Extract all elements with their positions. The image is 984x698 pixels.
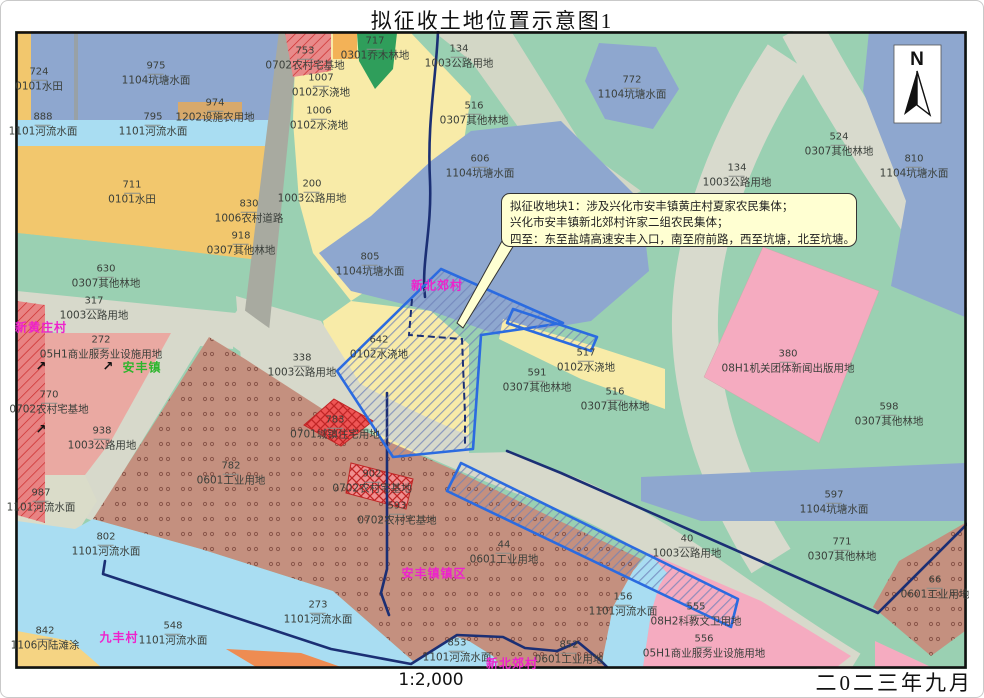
page: 拟征收土地位置示意图1 <box>0 0 984 698</box>
north-letter: N <box>910 49 924 70</box>
callout-box: 拟征收地块1：涉及兴化市安丰镇黄庄村夏家农民集体； 兴化市安丰镇新北郊村许家二组… <box>501 193 857 247</box>
left-red-strip <box>17 301 45 523</box>
paddy-strip-left <box>17 31 31 123</box>
map-date: 二0二三年九月 <box>816 667 974 697</box>
callout-line-1: 拟征收地块1：涉及兴化市安丰镇黄庄村夏家农民集体； <box>510 198 848 214</box>
map-area[interactable]: N <box>15 31 967 669</box>
callout-line-2: 兴化市安丰镇新北郊村许家二组农民集体； <box>510 214 848 230</box>
river-top <box>17 120 279 147</box>
map-scale: 1:2,000 <box>351 670 511 690</box>
orange-parcel-top <box>333 33 357 59</box>
farm-facility-974 <box>178 102 242 119</box>
map-canvas: N <box>15 31 967 669</box>
callout-line-3: 四至：东至盐靖高速安丰入口，南至府前路，西至坑塘，北至坑塘。 <box>510 231 848 247</box>
residential-parcel-753 <box>285 33 331 77</box>
